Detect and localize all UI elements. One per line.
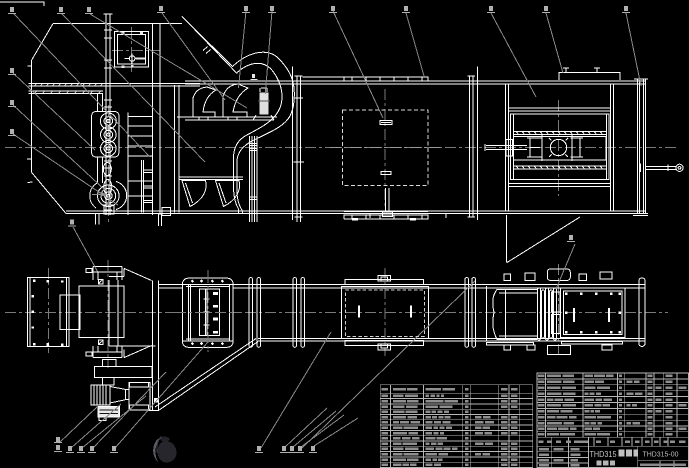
svg-text:THD315: THD315 — [590, 450, 617, 459]
svg-text:THD315-00: THD315-00 — [643, 452, 679, 459]
